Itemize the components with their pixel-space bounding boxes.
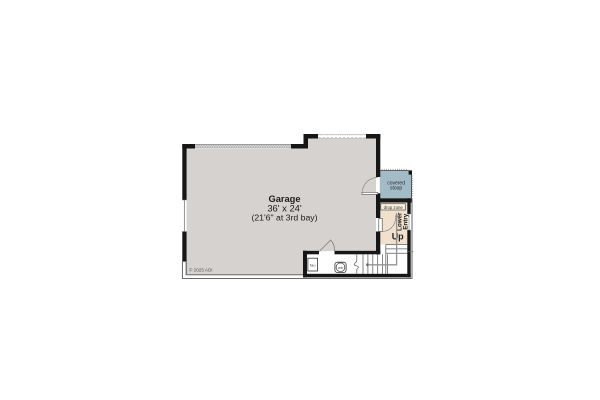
svg-text:fau: fau [310,263,316,268]
svg-text:drop zone: drop zone [384,205,404,210]
svg-text:Entry: Entry [403,213,410,229]
svg-text:© 2025 ADI: © 2025 ADI [189,266,213,272]
svg-text:stoop: stoop [390,186,402,192]
svg-text:(21'6" at 3rd bay): (21'6" at 3rd bay) [251,213,317,223]
svg-text:wh: wh [338,265,343,270]
svg-text:Up: Up [392,232,404,242]
